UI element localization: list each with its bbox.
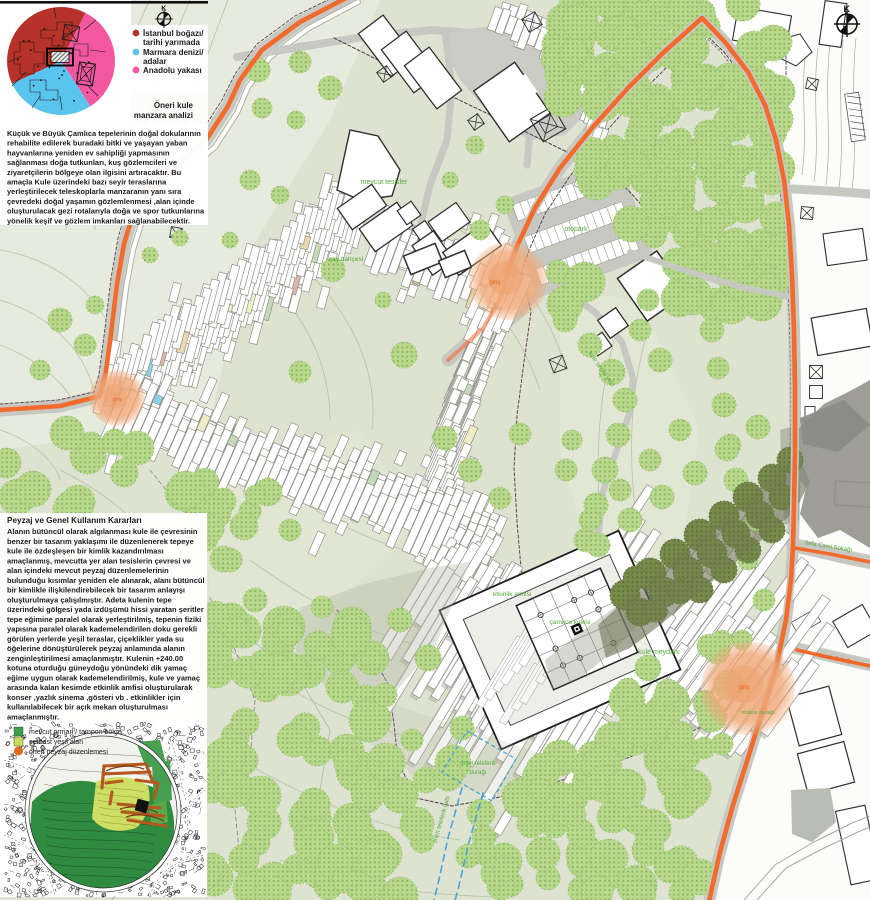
svg-text:öneri teleferik: öneri teleferik [460, 761, 497, 767]
svg-text:rehabilite edilerek buradaki b: rehabilite edilerek buradaki bitki ve ya… [7, 139, 188, 148]
svg-text:bulunduğu kısımlar yeniden ele: bulunduğu kısımlar yeniden ele alınarak,… [7, 576, 205, 585]
svg-text:yerleştirilecek teleskoplarla: yerleştirilecek teleskoplarla manzaranın… [7, 187, 182, 196]
svg-text:oluşturulmaya çalışılmıştır. A: oluşturulmaya çalışılmıştır. Adeta kulen… [7, 595, 172, 604]
svg-text:Öneri kule: Öneri kule [154, 101, 194, 110]
svg-text:konser ,yazlık sinema ,gösteri: konser ,yazlık sinema ,gösteri vb . etki… [7, 693, 181, 702]
svg-text:mevcut orman / tampon bölge: mevcut orman / tampon bölge [29, 729, 122, 736]
svg-text:otobüs durağı: otobüs durağı [741, 710, 775, 716]
svg-text:eğime uygun olarak kademelendi: eğime uygun olarak kademelendirilmiş, ku… [7, 673, 200, 682]
svg-text:arasında kalan kesimde etkinli: arasında kalan kesimde etkinlik amfisi o… [7, 683, 193, 692]
svg-text:oluşturulacak gezi rotalarıyla: oluşturulacak gezi rotalarıyla doğa ve s… [7, 207, 205, 216]
svg-text:yapısına paralel olarak kademe: yapısına paralel olarak kademelendirilen… [7, 625, 197, 634]
svg-text:ziyaretçilerin bölgeye olan il: ziyaretçilerin bölgeye olan ilgisini art… [7, 168, 182, 177]
svg-text:durağı: durağı [469, 770, 486, 776]
svg-text:manzara analizi: manzara analizi [134, 111, 193, 120]
svg-text:bir kimlikle ilişkilendirebile: bir kimlikle ilişkilendirebilecek bir ta… [7, 586, 185, 595]
svg-text:alan içindeki mevcut peyzaj dü: alan içindeki mevcut peyzaj düzenlemeler… [7, 566, 169, 575]
svg-text:kotuna oturduğu güneydoğu yönü: kotuna oturduğu güneydoğu yönündeki dik … [7, 664, 187, 673]
svg-text:çay bahçesi: çay bahçesi [329, 256, 363, 263]
svg-text:yönelik keşif ve gözlem imkan: yönelik keşif ve gözlem imkanları sağlan… [7, 216, 190, 225]
svg-text:kullanılabilecek bir açık meka: kullanılabilecek bir açık mekan oluşturu… [7, 703, 168, 712]
svg-text:üzerindeki gölgesi yada izdüşü: üzerindeki gölgesi yada izdüşümü hissi y… [7, 605, 204, 614]
svg-text:adalar: adalar [143, 57, 167, 66]
svg-text:giriş: giriş [112, 397, 122, 403]
svg-text:Marmara denizi/: Marmara denizi/ [143, 48, 204, 57]
svg-text:Anadolu yakası: Anadolu yakası [143, 66, 202, 75]
svg-text:Peyzaj ve Genel Kullanım Karar: Peyzaj ve Genel Kullanım Kararları [7, 516, 142, 525]
svg-text:K: K [161, 6, 166, 13]
svg-text:kule ile özdeşleşen bir kimlik: kule ile özdeşleşen bir kimlik kazandırı… [7, 547, 164, 556]
svg-text:öneri peyzaj düzenlemesi: öneri peyzaj düzenlemesi [29, 749, 108, 756]
svg-text:amaçla Kule üzerindeki bazı se: amaçla Kule üzerindeki bazı seyir terasl… [7, 178, 167, 187]
svg-text:tepe eğimine paralel olarak ye: tepe eğimine paralel olarak yerleştirilm… [7, 615, 201, 624]
svg-text:sağlanması doğa tutkunları, ku: sağlanması doğa tutkunları, kuş gözlemci… [7, 158, 177, 167]
svg-text:giriş: giriş [489, 280, 500, 286]
svg-text:giriş: giriş [738, 685, 749, 691]
svg-text:etkinlik amfisi: etkinlik amfisi [493, 591, 532, 598]
svg-text:zenginleştirilmesi amaçlanmışt: zenginleştirilmesi amaçlanmıştır. Kuleni… [7, 654, 183, 663]
svg-text:çamlıca kulesi: çamlıca kulesi [550, 619, 591, 626]
svg-text:Alanın bütüncül olarak algılan: Alanın bütüncül olarak algılanması kule … [7, 527, 198, 536]
svg-text:benzer bir tasarım yaklaşımı i: benzer bir tasarım yaklaşımı ile düzenle… [7, 537, 194, 546]
svg-text:amaçlanmış, mevcutta yer alan: amaçlanmış, mevcutta yer alan tesislerin… [7, 556, 191, 565]
svg-text:otopark: otopark [564, 226, 588, 233]
svg-text:İstanbul boğazı/: İstanbul boğazı/ [143, 29, 204, 38]
svg-text:öğelerine dönüştürülerek peyza: öğelerine dönüştürülerek peyzaj anlamınd… [7, 644, 185, 653]
svg-text:hayvanlarına yeniden ev sahipl: hayvanlarına yeniden ev sahipliği yapmas… [7, 148, 170, 157]
svg-text:Küçük ve Büyük Çamlıca tepeler: Küçük ve Büyük Çamlıca tepelerinin doğal… [7, 129, 201, 138]
svg-text:K: K [844, 4, 851, 14]
svg-text:görülen yerlerde yeşil terasla: görülen yerlerde yeşil teraslar, çiçekli… [7, 634, 184, 643]
svg-text:mevcut tesisler: mevcut tesisler [361, 179, 408, 186]
svg-text:amaçlanmıştır.: amaçlanmıştır. [7, 712, 59, 721]
svg-text:tarihi yarımada: tarihi yarımada [143, 38, 200, 47]
svg-text:serbest yeşil alan: serbest yeşil alan [29, 739, 83, 746]
svg-text:çevredeki doğal yaşamın gözlem: çevredeki doğal yaşamın gözlemlenmesi ,a… [7, 197, 195, 206]
svg-text:kule meydanı: kule meydanı [638, 649, 680, 656]
